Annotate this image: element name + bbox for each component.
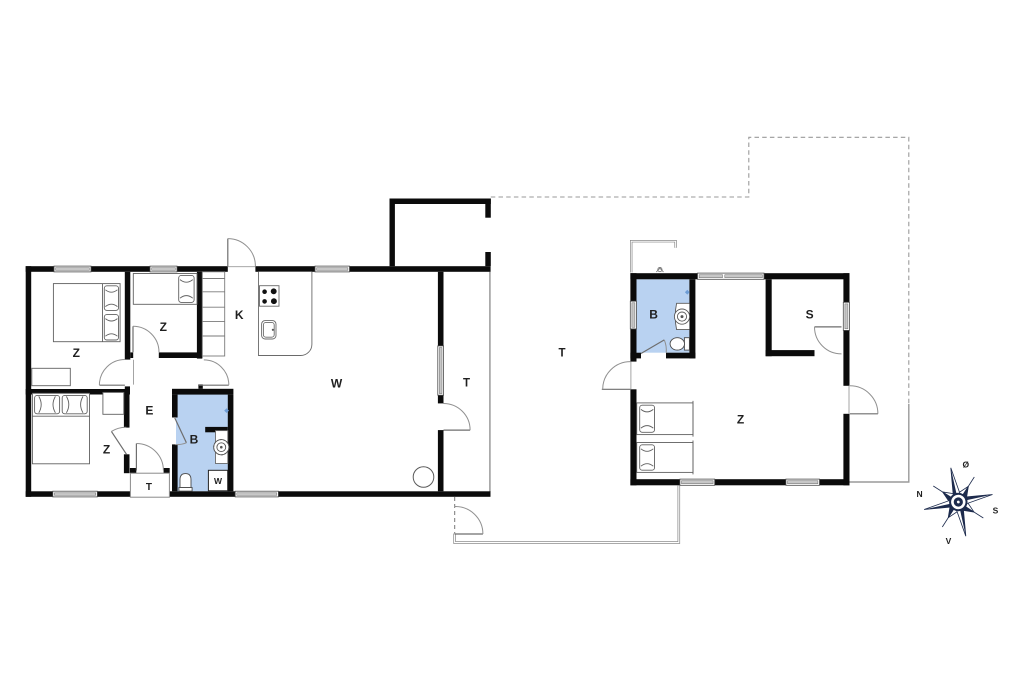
svg-text:V: V <box>946 536 952 546</box>
svg-text:Z: Z <box>103 443 110 457</box>
svg-text:B: B <box>190 433 199 447</box>
svg-text:W: W <box>331 376 343 390</box>
svg-text:T: T <box>463 378 470 390</box>
svg-text:Z: Z <box>160 320 167 334</box>
svg-text:S: S <box>993 506 999 516</box>
svg-text:T: T <box>558 348 565 360</box>
svg-text:Z: Z <box>73 346 80 360</box>
svg-text:Ø: Ø <box>962 460 969 470</box>
svg-text:B: B <box>649 308 658 322</box>
svg-text:W: W <box>214 476 223 486</box>
svg-text:N: N <box>916 489 922 499</box>
svg-text:K: K <box>235 308 244 322</box>
svg-text:E: E <box>145 404 153 418</box>
svg-text:T: T <box>146 482 152 493</box>
svg-text:S: S <box>806 308 814 322</box>
svg-text:Z: Z <box>737 413 744 427</box>
